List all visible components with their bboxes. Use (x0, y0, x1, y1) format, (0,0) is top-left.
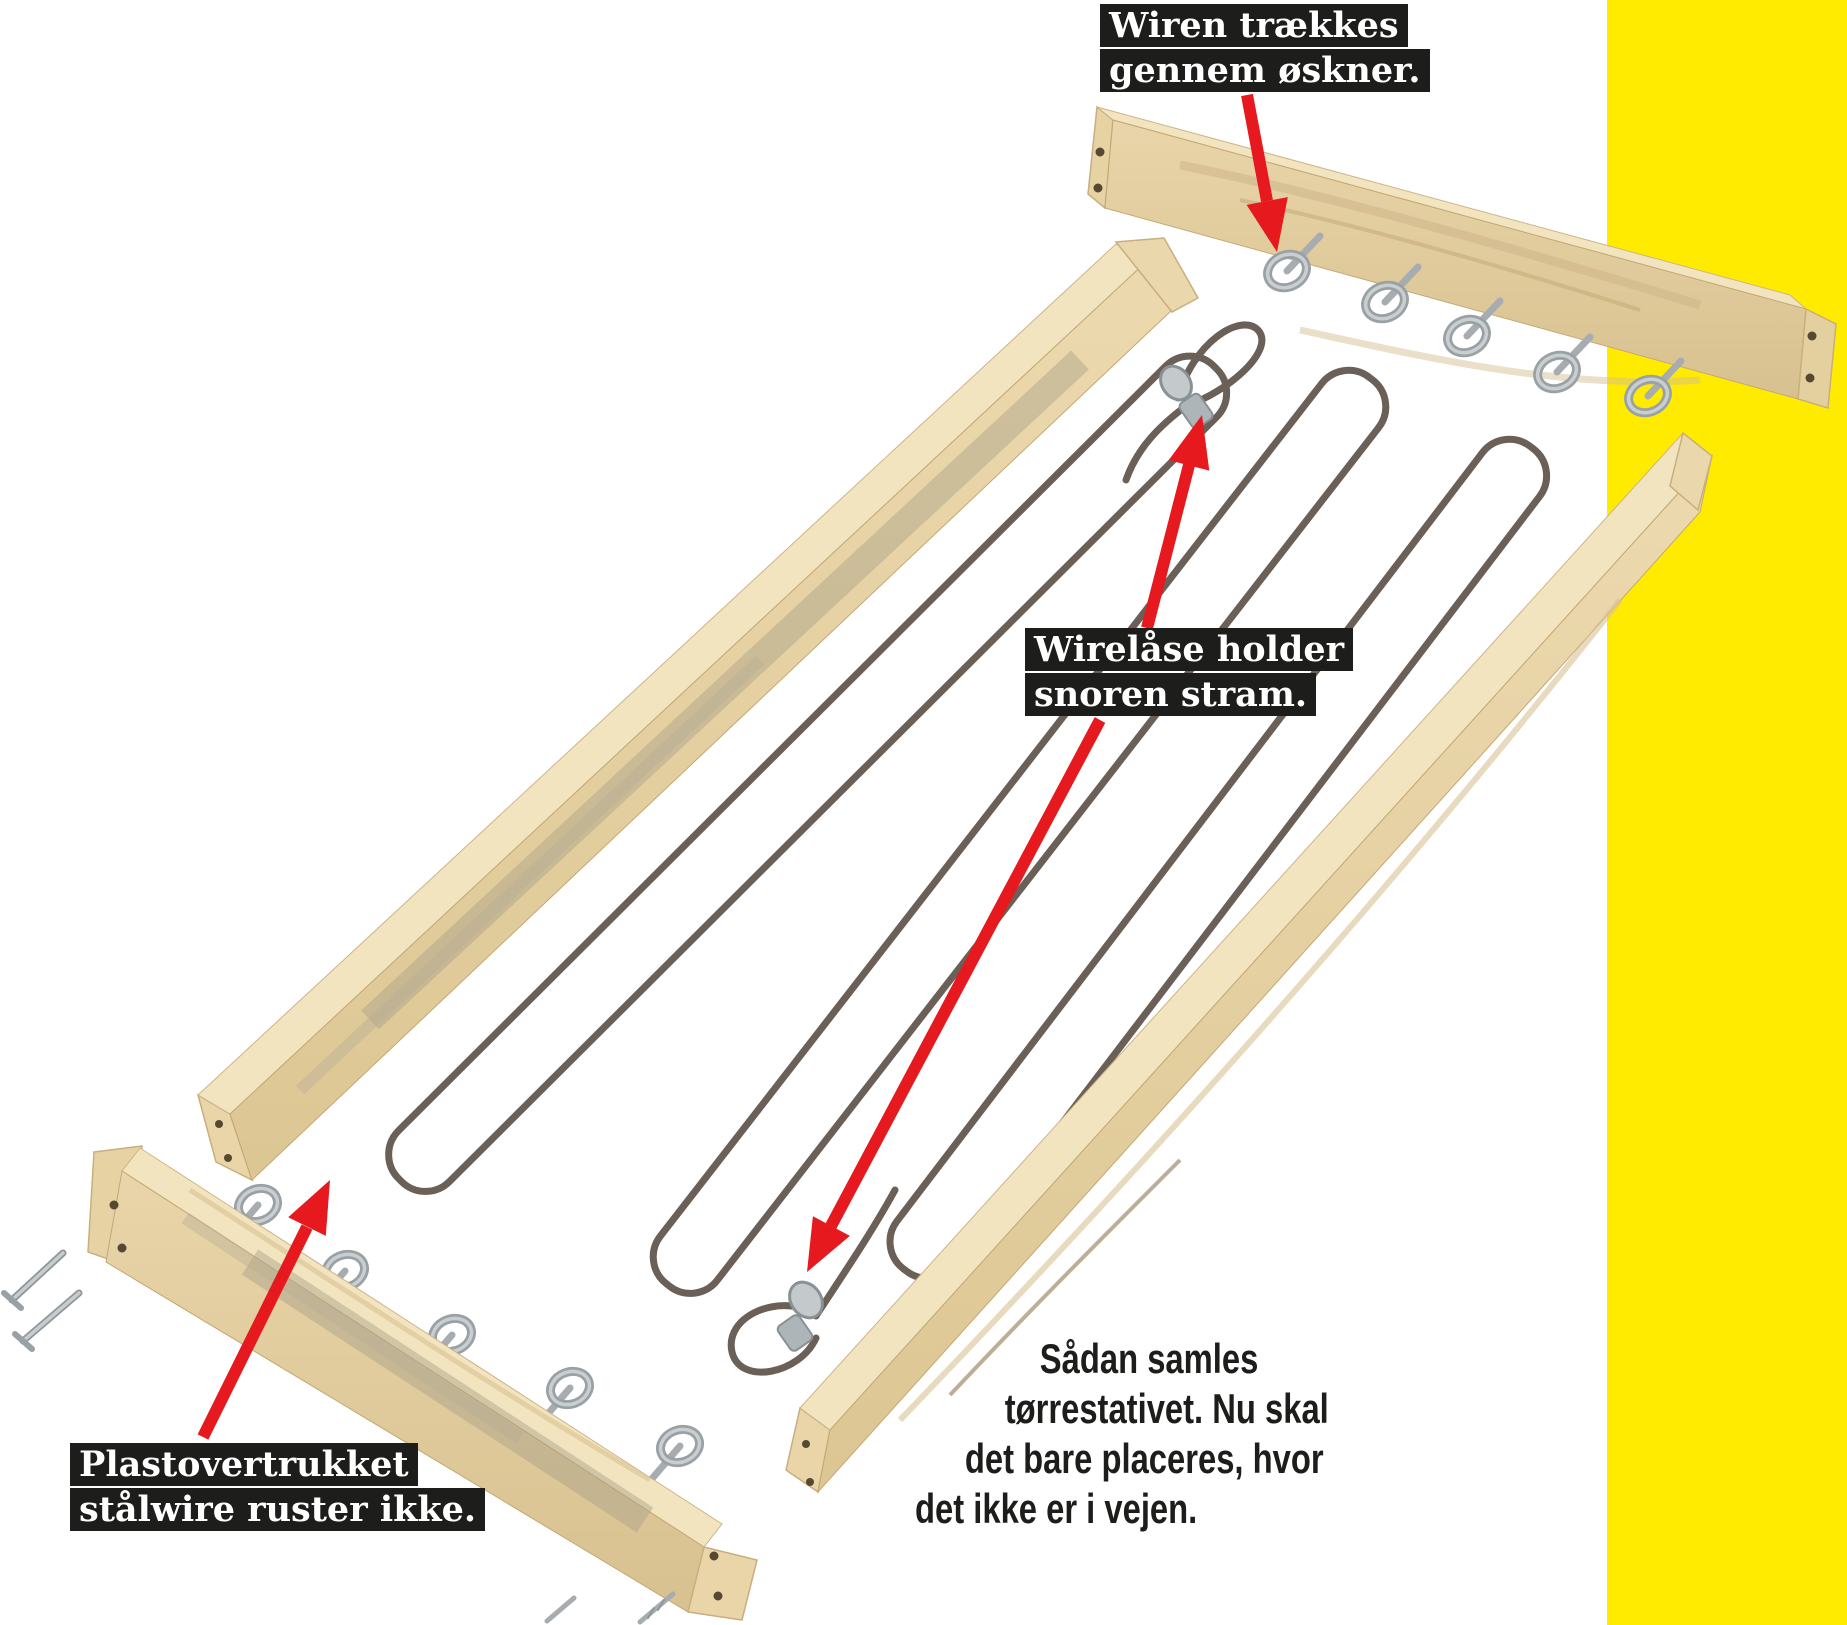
nail-hole (1096, 148, 1105, 157)
eye-screw-icon (1442, 301, 1500, 359)
callout-line: Plastovertrukket (70, 1443, 418, 1486)
eye-screw-icon (650, 1424, 705, 1481)
caption-line: Sådan samles (1040, 1334, 1329, 1384)
nail-hole (110, 1201, 119, 1210)
nail-hole (1094, 184, 1103, 193)
nail-hole (1808, 332, 1817, 341)
screw-icon (640, 1594, 673, 1622)
wooden-end-board-bottom (88, 1146, 757, 1620)
nail-hole (1806, 374, 1815, 383)
wire-lock-ring (783, 1276, 829, 1324)
callout-line: snoren stram. (1025, 673, 1316, 716)
nail-hole (224, 1154, 232, 1162)
callout-line: gennem øskner. (1100, 49, 1430, 92)
callout-wire-through-eyes: Wiren trækkes gennem øskner. (1100, 4, 1430, 92)
caption-line: det ikke er i vejen. (915, 1484, 1329, 1534)
nail-hole (215, 1120, 223, 1128)
nail-icon (4, 1253, 63, 1308)
screw-icon (547, 1598, 574, 1621)
callout-plastic-wire: Plastovertrukket stålwire ruster ikke. (70, 1443, 485, 1531)
wire-free-end (1126, 406, 1186, 480)
caption-text: Sådan samles tørrestativet. Nu skal det … (915, 1334, 1329, 1534)
arrow-to-top-wire-lock (1147, 415, 1209, 628)
nail-hole (802, 1440, 810, 1448)
eye-screw-icon (1532, 337, 1590, 395)
callout-line: Wiren trækkes (1100, 4, 1408, 47)
nail-hole (806, 1478, 814, 1486)
magazine-assembly-diagram: Wiren trækkes gennem øskner. Wirelåse ho… (0, 0, 1847, 1625)
nail-hole (714, 1592, 723, 1601)
nail-hole (118, 1244, 127, 1253)
nail-icon (15, 1293, 79, 1349)
callout-line: Wirelåse holder (1025, 628, 1353, 671)
caption-line: tørrestativet. Nu skal (1005, 1384, 1329, 1434)
nail-hole (710, 1552, 719, 1561)
callout-wire-locks: Wirelåse holder snoren stram. (1025, 628, 1353, 716)
yellow-accent-stripe (1607, 0, 1847, 1625)
caption-line: det bare placeres, hvor (965, 1434, 1329, 1484)
callout-line: stålwire ruster ikke. (70, 1488, 485, 1531)
